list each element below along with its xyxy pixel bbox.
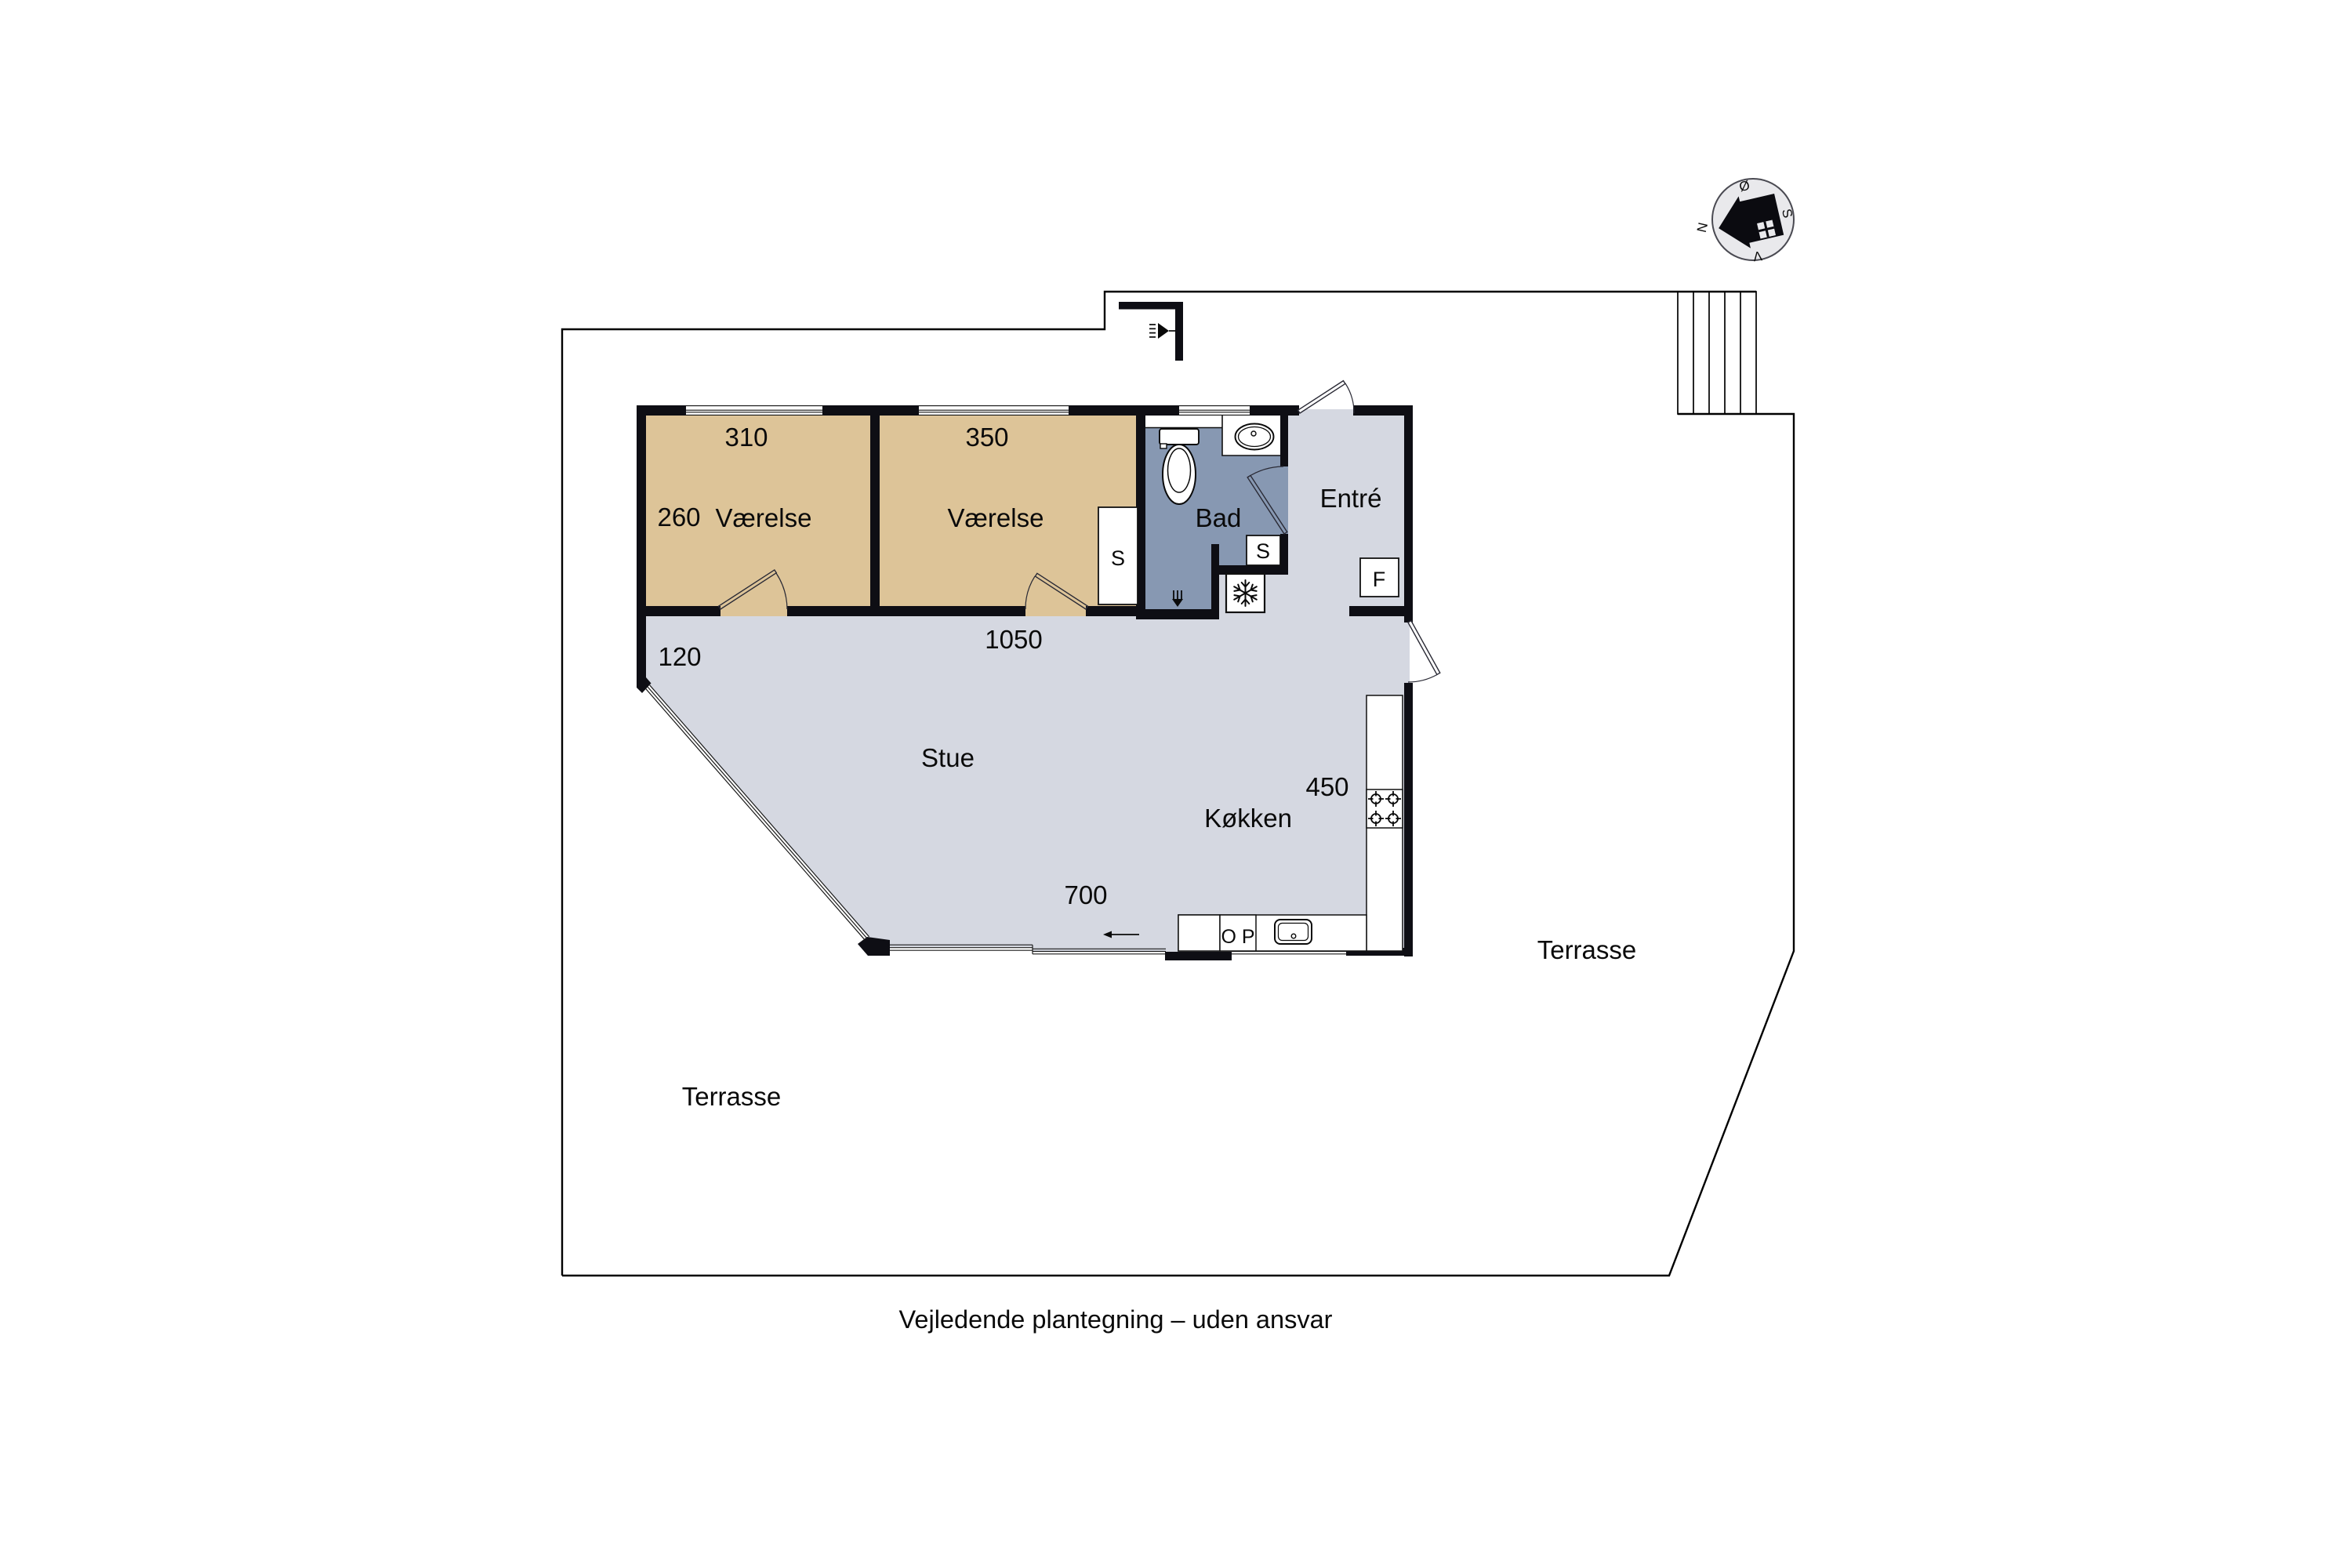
- svg-text:700: 700: [1064, 880, 1107, 909]
- svg-text:Entré: Entré: [1320, 484, 1382, 513]
- svg-text:Køkken: Køkken: [1204, 804, 1292, 833]
- svg-text:Værelse: Værelse: [948, 503, 1044, 532]
- svg-text:Vejledende plantegning – uden: Vejledende plantegning – uden ansvar: [899, 1305, 1333, 1334]
- svg-text:S: S: [1256, 539, 1270, 563]
- svg-text:Terrasse: Terrasse: [1537, 935, 1637, 964]
- svg-text:O P: O P: [1221, 926, 1254, 948]
- svg-text:450: 450: [1305, 772, 1348, 801]
- svg-text:Værelse: Værelse: [716, 503, 812, 532]
- svg-text:260: 260: [657, 503, 700, 532]
- svg-text:S: S: [1111, 546, 1125, 570]
- svg-text:1050: 1050: [985, 625, 1042, 654]
- svg-text:310: 310: [724, 423, 768, 452]
- svg-text:Stue: Stue: [921, 743, 975, 772]
- svg-text:F: F: [1373, 568, 1386, 591]
- svg-text:Bad: Bad: [1196, 503, 1242, 532]
- svg-text:350: 350: [965, 423, 1008, 452]
- svg-text:Terrasse: Terrasse: [682, 1082, 782, 1111]
- svg-text:120: 120: [658, 642, 701, 671]
